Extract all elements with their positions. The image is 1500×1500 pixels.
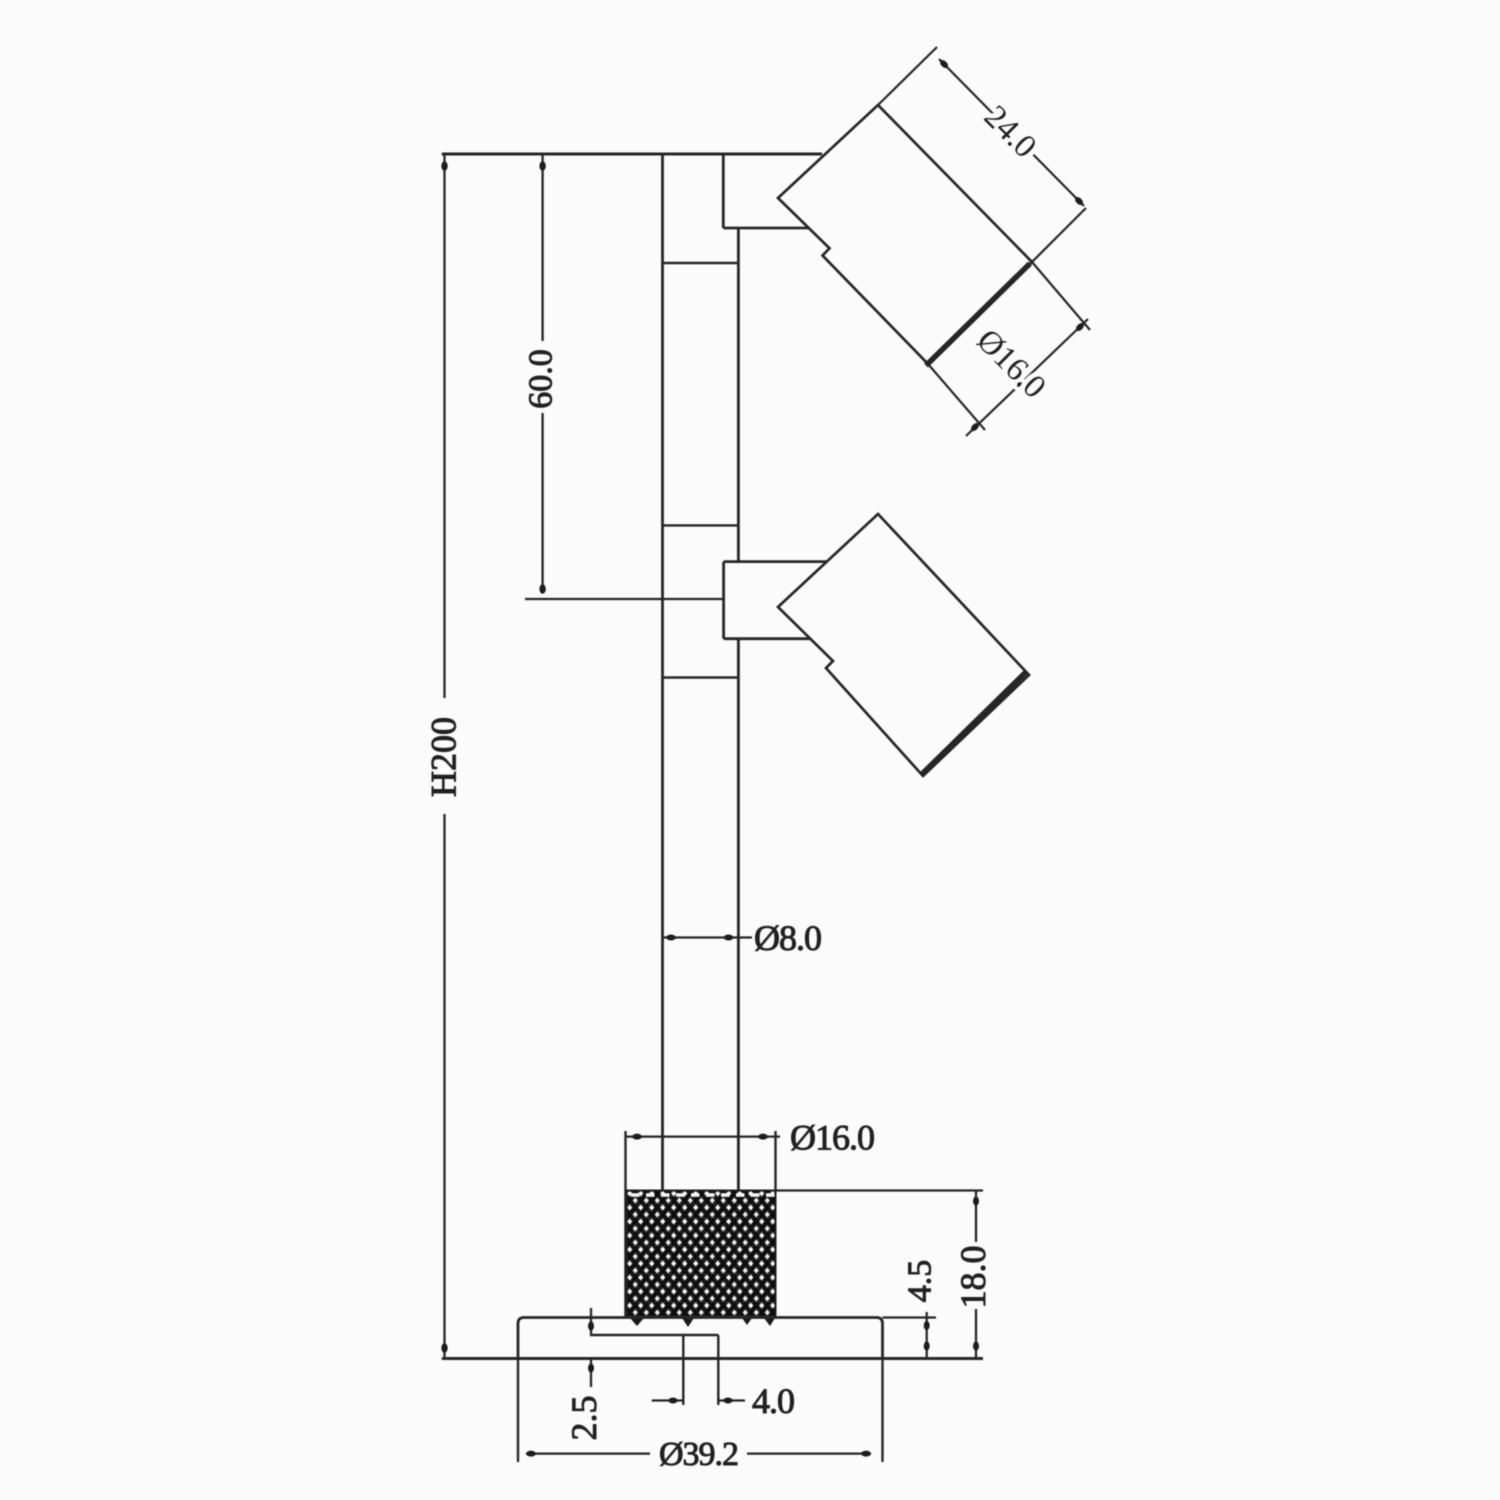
svg-text:Ø39.2: Ø39.2 <box>659 1436 738 1473</box>
svg-text:Ø16.0: Ø16.0 <box>790 1118 874 1158</box>
svg-text:4.0: 4.0 <box>752 1381 794 1421</box>
svg-text:Ø8.0: Ø8.0 <box>754 918 821 958</box>
svg-text:4.5: 4.5 <box>902 1260 939 1303</box>
svg-text:18.0: 18.0 <box>953 1246 993 1309</box>
svg-text:H200: H200 <box>424 717 464 797</box>
svg-text:60.0: 60.0 <box>523 349 560 409</box>
svg-text:2.5: 2.5 <box>564 1396 604 1441</box>
